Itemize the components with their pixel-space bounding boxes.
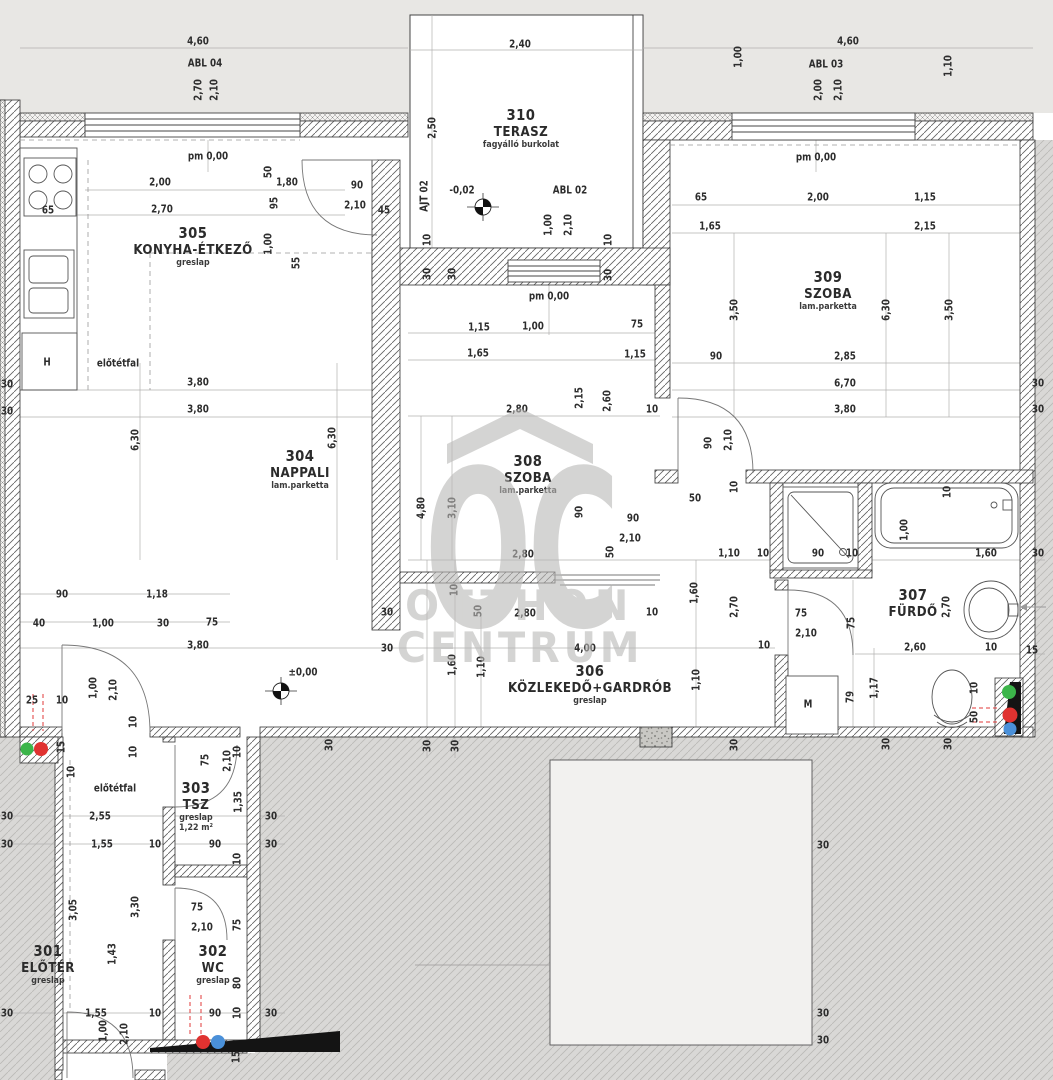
window-abl04 — [85, 113, 300, 137]
toilet — [932, 670, 972, 728]
door-wc — [175, 888, 227, 940]
bathtub — [875, 483, 1018, 548]
window-abl03 — [732, 113, 915, 140]
window-abl02 — [508, 260, 600, 282]
door-tsz — [175, 745, 237, 807]
door-bathroom — [788, 590, 853, 655]
door-nappali-entry — [62, 645, 150, 733]
level-marker-nappali — [265, 677, 297, 705]
door-kitchen-terrace — [302, 160, 377, 235]
floorplan-drawing — [0, 0, 1053, 1080]
washing-machine — [786, 676, 838, 734]
door-szoba309 — [678, 398, 753, 473]
sliding-door-szoba308 — [553, 575, 660, 585]
shower — [783, 487, 858, 568]
kitchen-fixtures — [20, 148, 77, 390]
floorplan-page: 4,60ABL 042,702,102,402,504,60ABL 032,00… — [0, 0, 1053, 1080]
